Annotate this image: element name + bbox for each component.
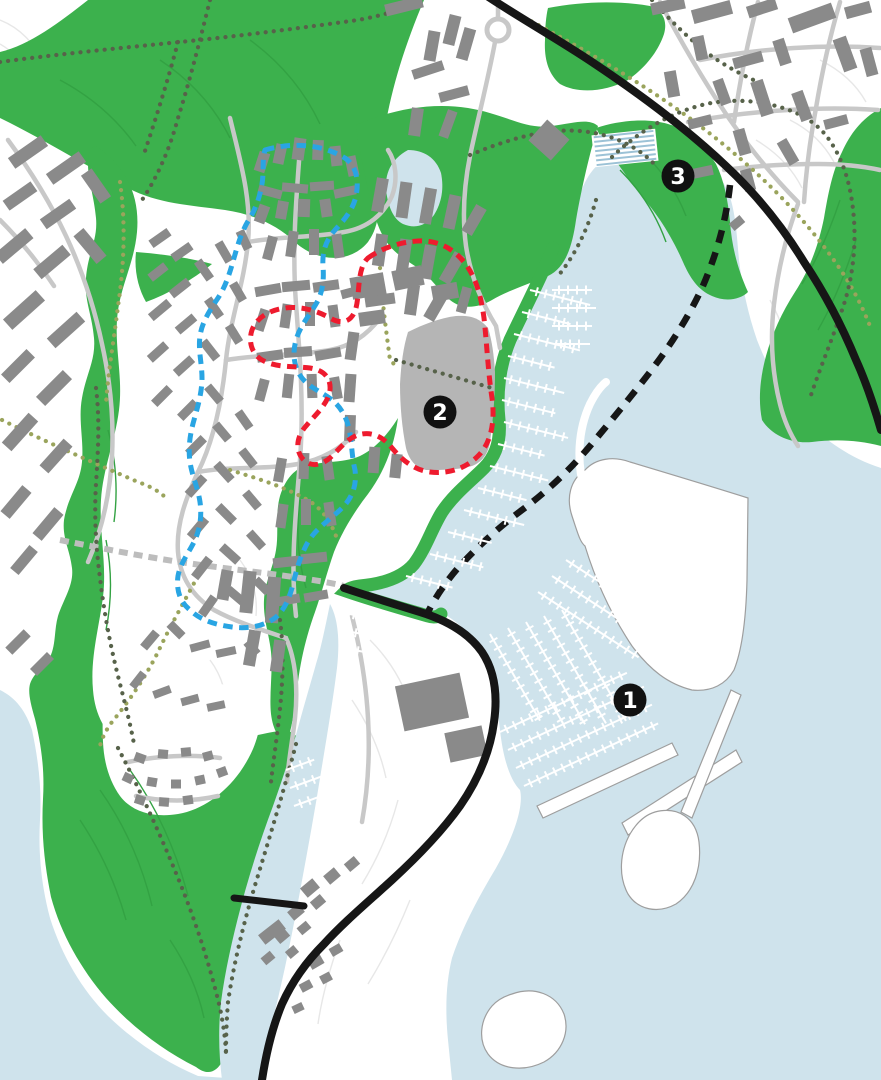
building-footprint (158, 749, 169, 759)
map-canvas[interactable]: 123 (0, 0, 881, 1080)
map-marker-1[interactable]: 1 (614, 684, 647, 717)
building-footprint (329, 145, 342, 166)
building-footprint (301, 499, 311, 525)
plan-map[interactable]: 123 (0, 0, 881, 1080)
marker-number: 3 (670, 165, 685, 190)
marker-number: 1 (622, 689, 637, 714)
building-footprint (181, 747, 192, 757)
building-footprint (159, 797, 170, 807)
map-marker-2[interactable]: 2 (424, 396, 457, 429)
building-footprint (146, 777, 157, 788)
building-footprint (171, 780, 181, 789)
building-footprint (310, 181, 335, 192)
building-footprint (298, 199, 311, 217)
building-footprint (182, 795, 193, 805)
map-marker-3[interactable]: 3 (662, 160, 695, 193)
plaza-area (400, 316, 495, 470)
building-footprint (344, 374, 357, 403)
building-footprint (309, 229, 319, 255)
building-footprint (368, 447, 381, 474)
marker-number: 2 (432, 401, 447, 426)
building-footprint (284, 346, 313, 358)
roundabout (487, 19, 509, 41)
